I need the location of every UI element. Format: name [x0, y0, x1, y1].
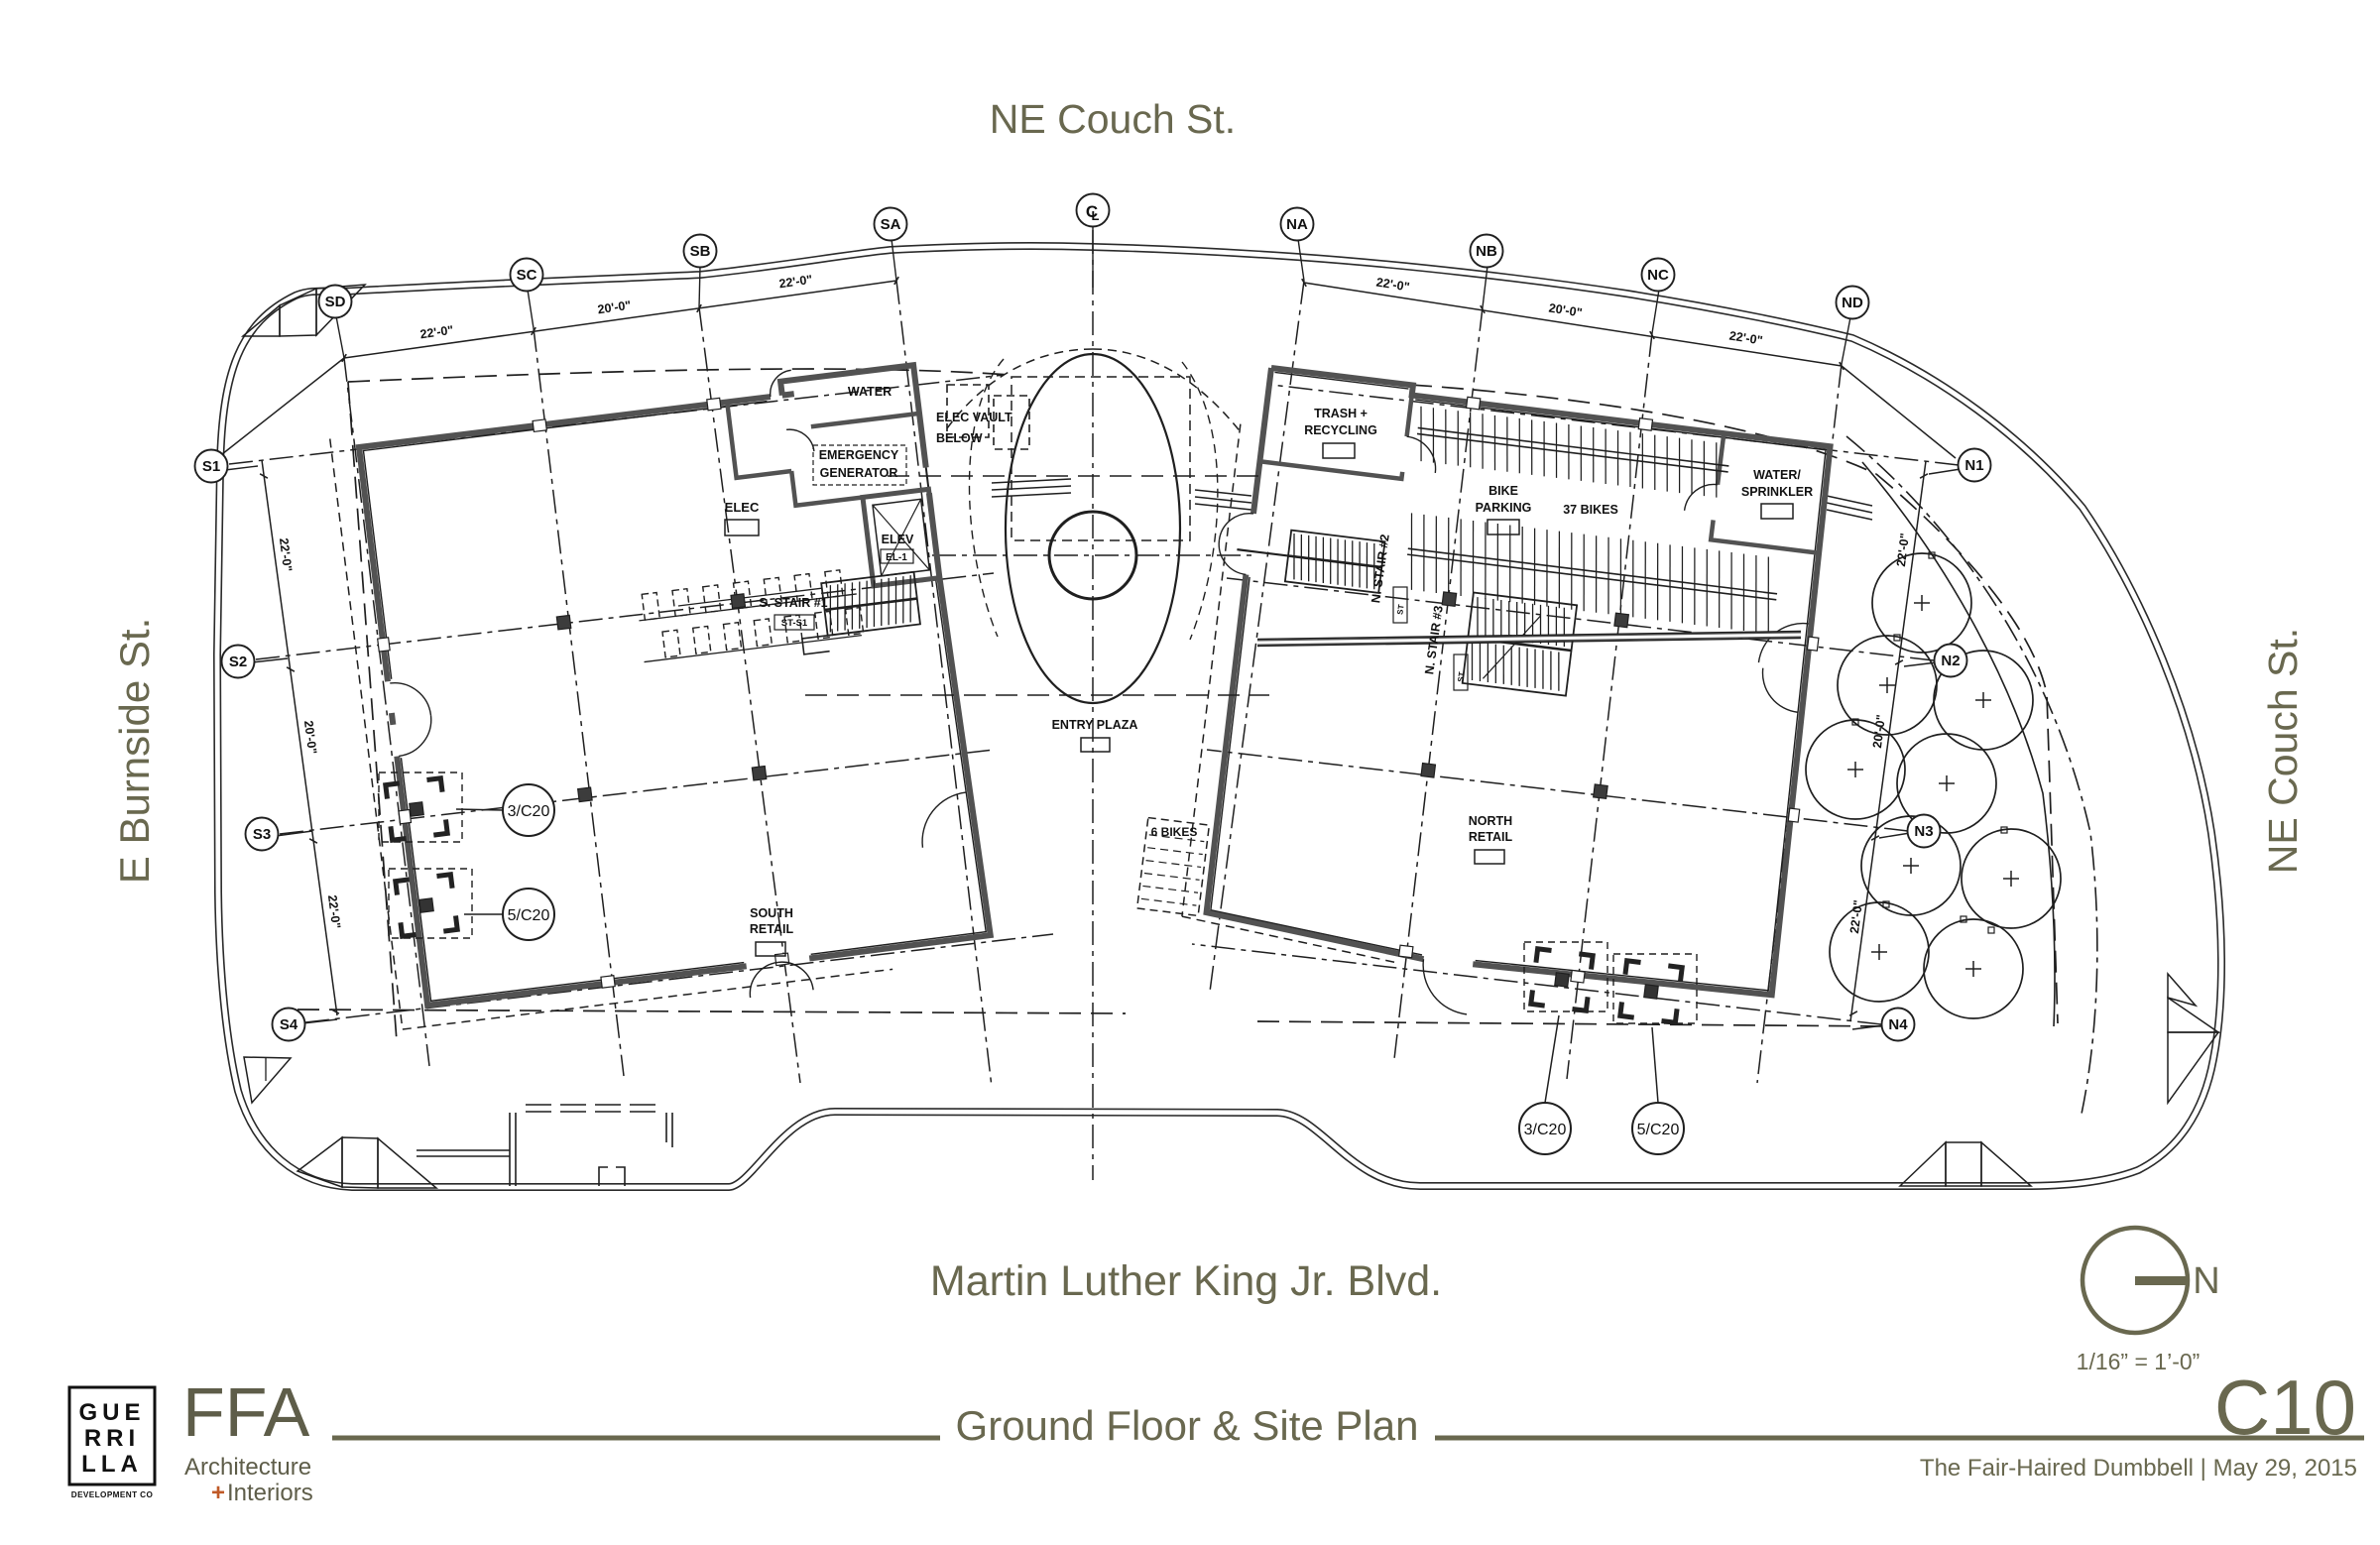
svg-text:ST: ST — [1456, 671, 1466, 682]
svg-text:S1: S1 — [202, 458, 220, 475]
svg-text:LLA: LLA — [81, 1451, 143, 1478]
svg-text:N3: N3 — [1914, 823, 1933, 840]
svg-text:SD: SD — [325, 294, 346, 310]
svg-text:RETAIL: RETAIL — [1469, 830, 1513, 844]
svg-text:PARKING: PARKING — [1476, 501, 1532, 515]
svg-text:N4: N4 — [1888, 1016, 1908, 1033]
svg-text:GUE: GUE — [78, 1399, 145, 1426]
svg-text:RETAIL: RETAIL — [750, 922, 794, 936]
svg-text:5/C20: 5/C20 — [1637, 1122, 1680, 1138]
svg-text:NA: NA — [1286, 216, 1308, 233]
svg-text:N2: N2 — [1941, 653, 1960, 669]
svg-text:ND: ND — [1842, 295, 1863, 311]
svg-text:EL-1: EL-1 — [886, 552, 907, 563]
svg-text:S. STAIR #1: S. STAIR #1 — [759, 596, 827, 610]
svg-text:S2: S2 — [229, 654, 247, 670]
svg-text:SA: SA — [881, 216, 901, 233]
svg-text:SC: SC — [517, 267, 537, 284]
svg-text:EMERGENCY: EMERGENCY — [819, 448, 899, 462]
svg-text:SPRINKLER: SPRINKLER — [1741, 485, 1813, 499]
svg-text:NC: NC — [1647, 267, 1669, 284]
svg-text:N1: N1 — [1964, 457, 1983, 474]
svg-text:3/C20: 3/C20 — [508, 803, 550, 820]
svg-text:S4: S4 — [280, 1016, 298, 1033]
svg-text:Interiors: Interiors — [227, 1480, 313, 1506]
svg-text:Ground Floor & Site Plan: Ground Floor & Site Plan — [956, 1402, 1419, 1449]
svg-text:N: N — [2193, 1260, 2219, 1302]
svg-text:The Fair-Haired Dumbbell | May: The Fair-Haired Dumbbell | May 29, 2015 — [1920, 1455, 2357, 1482]
svg-text:L: L — [1092, 208, 1100, 223]
svg-text:S3: S3 — [253, 826, 271, 843]
svg-text:WATER/: WATER/ — [1753, 468, 1801, 482]
svg-text:SOUTH: SOUTH — [750, 906, 793, 920]
svg-text:ELEV: ELEV — [882, 533, 914, 546]
svg-text:Martin Luther King Jr. Blvd.: Martin Luther King Jr. Blvd. — [930, 1257, 1442, 1305]
svg-text:TRASH +: TRASH + — [1314, 407, 1368, 420]
svg-text:E Burnside St.: E Burnside St. — [111, 618, 158, 884]
svg-text:C10: C10 — [2214, 1364, 2356, 1451]
svg-text:NE Couch St.: NE Couch St. — [2260, 628, 2306, 874]
svg-text:3/C20: 3/C20 — [1524, 1122, 1567, 1138]
svg-text:NORTH: NORTH — [1469, 814, 1512, 828]
svg-text:BIKE: BIKE — [1488, 484, 1518, 498]
svg-text:NB: NB — [1476, 243, 1497, 260]
svg-text:37 BIKES: 37 BIKES — [1563, 503, 1618, 517]
svg-text:RRI: RRI — [84, 1425, 140, 1452]
svg-text:GENERATOR: GENERATOR — [820, 466, 898, 480]
svg-text:DEVELOPMENT CO: DEVELOPMENT CO — [71, 1490, 154, 1499]
svg-text:WATER: WATER — [848, 385, 892, 399]
svg-text:+: + — [211, 1480, 225, 1506]
svg-text:5/C20: 5/C20 — [508, 907, 550, 924]
svg-text:ST: ST — [1395, 604, 1405, 615]
svg-text:SB: SB — [690, 243, 711, 260]
svg-text:ELEC: ELEC — [725, 500, 760, 515]
svg-text:ST-S1: ST-S1 — [781, 618, 808, 629]
svg-text:1/16” = 1’-0”: 1/16” = 1’-0” — [2077, 1349, 2201, 1374]
svg-text:FFA: FFA — [182, 1373, 310, 1451]
svg-text:6 BIKES: 6 BIKES — [1151, 825, 1198, 839]
svg-text:NE Couch St.: NE Couch St. — [990, 96, 1236, 142]
svg-text:ELEC VAULT: ELEC VAULT — [936, 411, 1012, 424]
svg-text:RECYCLING: RECYCLING — [1304, 423, 1377, 437]
svg-text:Architecture: Architecture — [184, 1454, 311, 1481]
svg-text:ENTRY PLAZA: ENTRY PLAZA — [1052, 718, 1138, 732]
svg-text:BELOW: BELOW — [936, 431, 983, 445]
